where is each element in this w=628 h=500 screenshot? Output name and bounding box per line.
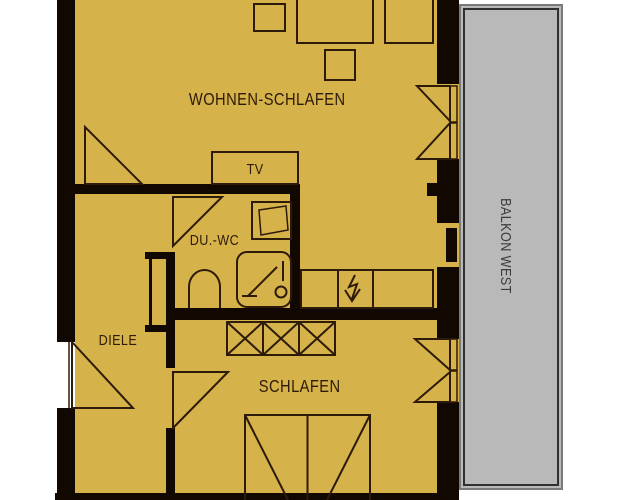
lineart-layer <box>0 0 628 500</box>
shower-spray-line <box>248 267 277 296</box>
counter-unit-3 <box>373 270 433 308</box>
furniture-square-2 <box>325 50 355 80</box>
balcony-door-wohnen-lower <box>417 123 450 159</box>
label-tv: TV <box>233 158 277 180</box>
balcony-door-schlafen-leaf-1 <box>450 339 457 370</box>
label-du-wc: DU.-WC <box>176 229 252 251</box>
shower-drain <box>276 287 287 298</box>
label-balkon-west: BALKON WEST <box>497 166 515 326</box>
door-swing-wohnen <box>85 127 142 184</box>
label-diele: DIELE <box>85 329 150 351</box>
toilet <box>189 270 220 308</box>
washbasin-bowl <box>259 206 288 235</box>
balcony-door-schlafen-lower <box>415 372 450 402</box>
balcony-door-wohnen-leaf-2 <box>450 123 457 159</box>
counter-unit-1 <box>301 270 338 308</box>
balcony-door-schlafen-leaf-2 <box>450 371 457 402</box>
balcony-door-schlafen-upper <box>415 339 450 370</box>
floor-plan: WOHNEN-SCHLAFEN TV DU.-WC DIELE SCHLAFEN… <box>0 0 628 500</box>
furniture-square-1 <box>254 4 285 31</box>
label-wohnen-schlafen: WOHNEN-SCHLAFEN <box>180 88 355 110</box>
furniture-table-large <box>297 0 373 43</box>
balcony-door-wohnen-leaf-1 <box>450 86 457 122</box>
door-swing-entrance <box>72 342 133 408</box>
furniture-rect-right <box>385 0 433 43</box>
bed-blanket-right <box>327 415 370 500</box>
label-schlafen: SCHLAFEN <box>250 375 350 397</box>
balcony-door-wohnen-upper <box>417 86 450 121</box>
door-swing-schlafen <box>173 372 228 428</box>
bed-blanket-left <box>245 415 288 500</box>
